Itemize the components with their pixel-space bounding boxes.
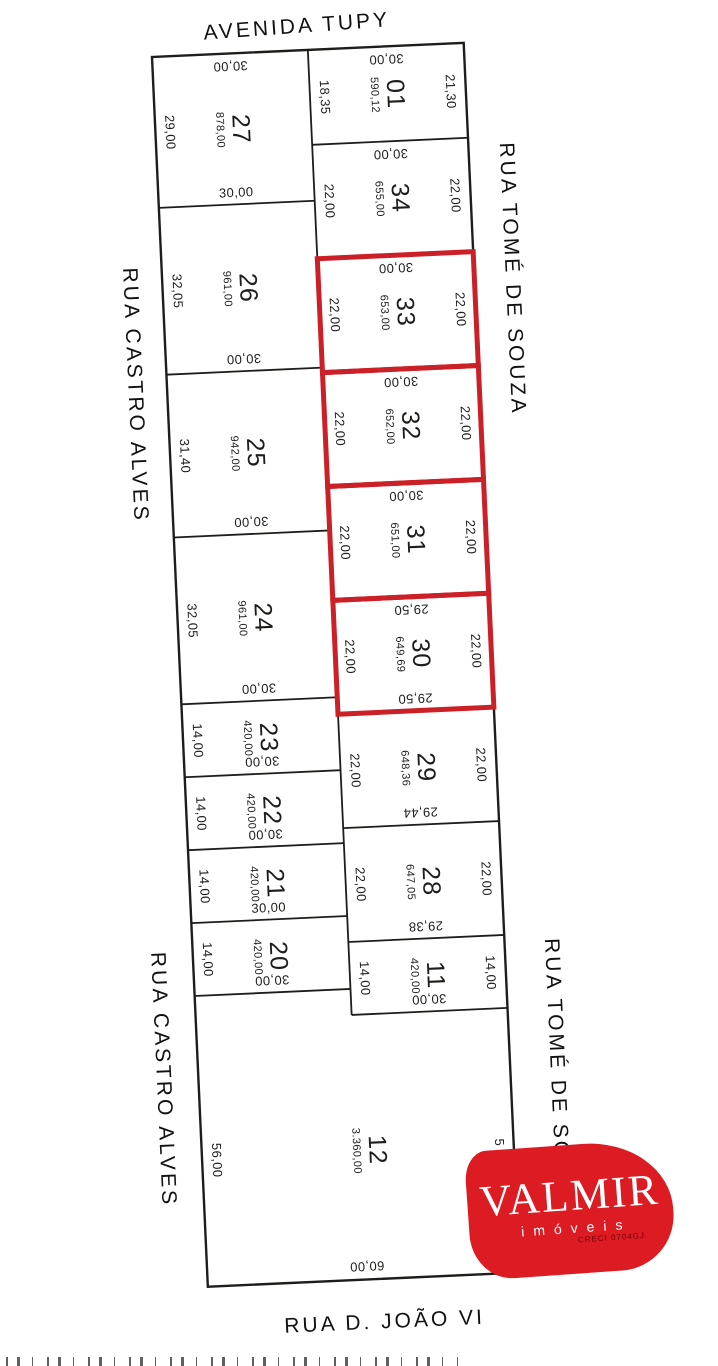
dimension-label: 30,00	[226, 352, 261, 367]
dimension-label: 14,00	[191, 723, 206, 758]
dimension-label: 30,00	[213, 59, 248, 74]
lot-34: 34655,00	[372, 179, 413, 217]
dimension-label: 29,38	[408, 919, 443, 934]
dimension-label: 30,00	[241, 682, 276, 697]
lot-number: 23	[255, 721, 281, 752]
dimension-label: 29,50	[394, 603, 429, 618]
dimension-label: 30,00	[389, 489, 424, 504]
lot-number: 20	[265, 940, 291, 971]
dimension-label: 30,00	[254, 973, 289, 988]
bottom-cutoff-text-artifact	[6, 1357, 458, 1366]
boundary-line	[348, 935, 504, 942]
lot-number: 12	[364, 1134, 390, 1165]
dimension-label: 32,05	[170, 273, 185, 308]
boundary-line	[174, 530, 330, 537]
valmir-imoveis-logo: VALMIR imóveis CRECI 0704GJ	[464, 1138, 677, 1281]
dimension-label: 30,00	[219, 185, 254, 200]
lot-area: 590,12	[368, 76, 381, 113]
dimension-label: 22,00	[464, 519, 479, 554]
lot-number: 32	[397, 410, 423, 441]
lot-number: 25	[242, 437, 268, 468]
dimension-label: 30,00	[378, 261, 413, 276]
dimension-label: 30,00	[234, 515, 269, 530]
lot-number: 33	[392, 296, 418, 327]
lot-29: 29648,36	[398, 749, 439, 787]
dimension-label: 22,00	[459, 406, 474, 441]
boundary-line	[185, 770, 341, 777]
boundary-line	[188, 843, 344, 850]
lot-01: 01590,12	[368, 75, 409, 113]
dimension-label: 22,00	[328, 297, 343, 332]
dimension-label: 22,00	[322, 184, 337, 219]
dimension-label: 22,00	[479, 861, 494, 896]
boundary-line	[166, 368, 322, 375]
lot-area: 648,36	[398, 750, 411, 787]
lot-number: 30	[407, 638, 433, 669]
dimension-label: 30,00	[373, 147, 408, 162]
lot-area: 961,00	[235, 600, 248, 637]
dimension-label: 22,00	[333, 411, 348, 446]
lot-28: 28647,05	[403, 863, 444, 901]
dimension-label: 14,00	[201, 941, 216, 976]
lot-number: 26	[234, 272, 260, 303]
subdivision-plan-page: AVENIDA TUPY RUA TOMÉ DE SOUZA RUA TOMÉ …	[0, 0, 718, 1366]
street-label-rua-d-joao-vi: RUA D. JOÃO VI	[284, 1307, 485, 1337]
dimension-label: 14,00	[484, 955, 499, 990]
lot-number: 24	[249, 602, 275, 633]
lot-26: 26961,00	[220, 269, 261, 307]
dimension-label: 29,00	[163, 114, 178, 149]
dimension-label: 30,00	[251, 900, 286, 915]
boundary-line	[195, 989, 351, 996]
dimension-label: 22,00	[353, 867, 368, 902]
dimension-label: 14,00	[197, 868, 212, 903]
lot-20: 20420,00	[251, 937, 292, 975]
dimension-label: 22,00	[448, 178, 463, 213]
dimension-label: 32,05	[185, 603, 200, 638]
lot-number: 11	[422, 960, 448, 989]
lot-number: 34	[386, 182, 412, 213]
lot-area: 420,00	[247, 865, 260, 902]
lot-number: 29	[412, 752, 438, 783]
lot-25: 25942,00	[228, 434, 269, 472]
lot-area: 942,00	[228, 435, 241, 472]
dimension-label: 18,35	[318, 79, 333, 114]
dimension-label: 31,40	[178, 438, 193, 473]
lot-area: 420,00	[244, 793, 257, 830]
boundary-line	[312, 138, 468, 145]
lot-11: 11420,00	[408, 956, 449, 994]
dimension-label: 30,00	[383, 375, 418, 390]
lot-number: 21	[261, 867, 287, 898]
lot-area: 651,00	[388, 522, 401, 559]
dimension-label: 14,00	[194, 795, 209, 830]
lot-30: 30649,69	[393, 635, 434, 673]
lot-area: 420,00	[241, 720, 254, 757]
street-label-avenida-tupy: AVENIDA TUPY	[203, 9, 391, 43]
dimension-label: 60,00	[350, 1259, 385, 1274]
dimension-label: 29,44	[403, 805, 438, 820]
lot-area: 647,05	[403, 864, 416, 901]
lot-number: 28	[418, 866, 444, 897]
boundary-line	[343, 821, 499, 828]
lot-area: 652,00	[383, 408, 396, 445]
lot-number: 31	[402, 524, 428, 555]
dimension-label: 22,00	[338, 525, 353, 560]
lot-21: 21420,00	[247, 864, 288, 902]
dimension-label: 22,00	[474, 747, 489, 782]
lot-area: 961,00	[220, 270, 233, 307]
boundary-line	[191, 916, 347, 923]
lot-32: 32652,00	[383, 407, 424, 445]
dimension-label: 14,00	[358, 960, 373, 995]
lot-area: 3.360,00	[349, 1128, 362, 1174]
lot-area: 878,00	[213, 111, 226, 148]
partial-dimension-label: 5	[493, 1138, 506, 1146]
dimension-label: 22,00	[453, 292, 468, 327]
lot-24: 24961,00	[235, 598, 276, 636]
lot-number: 27	[227, 113, 253, 144]
lot-27: 27878,00	[213, 110, 254, 148]
lot-area: 420,00	[408, 957, 421, 994]
subdivision-plan: AVENIDA TUPY RUA TOMÉ DE SOUZA RUA TOMÉ …	[152, 43, 520, 1306]
dimension-label: 30,00	[248, 827, 283, 842]
lot-area: 655,00	[372, 181, 385, 218]
boundary-line	[352, 1008, 508, 1015]
lot-area: 420,00	[251, 938, 264, 975]
lot-area: 653,00	[378, 294, 391, 331]
lot-number: 22	[258, 794, 284, 825]
lot-22: 22420,00	[244, 791, 285, 829]
lot-number: 01	[382, 78, 408, 109]
dimension-label: 22,00	[343, 639, 358, 674]
dimension-label: 30,00	[245, 754, 280, 769]
dimension-label: 21,30	[444, 73, 459, 108]
street-label-rua-castro-alves-lower: RUA CASTRO ALVES	[147, 952, 180, 1208]
dimension-label: 22,00	[469, 633, 484, 668]
street-label-rua-castro-alves-upper: RUA CASTRO ALVES	[119, 267, 152, 523]
dimension-label: 22,00	[348, 753, 363, 788]
dimension-label: 30,00	[369, 52, 404, 67]
lot-33: 33653,00	[378, 293, 419, 331]
lot-23: 23420,00	[241, 718, 282, 756]
boundary-line	[159, 201, 315, 208]
dimension-label: 56,00	[210, 1143, 225, 1178]
street-label-rua-tome-de-souza-upper: RUA TOMÉ DE SOUZA	[496, 142, 529, 416]
logo-name: VALMIR	[478, 1168, 661, 1224]
lot-area: 649,69	[393, 636, 406, 673]
plan-lines	[152, 43, 520, 1306]
lot-12: 123.360,00	[349, 1126, 390, 1174]
lot-31: 31651,00	[388, 521, 429, 559]
boundary-line	[181, 697, 337, 704]
dimension-label: 30,00	[411, 992, 446, 1007]
dimension-label: 29,50	[398, 691, 433, 706]
